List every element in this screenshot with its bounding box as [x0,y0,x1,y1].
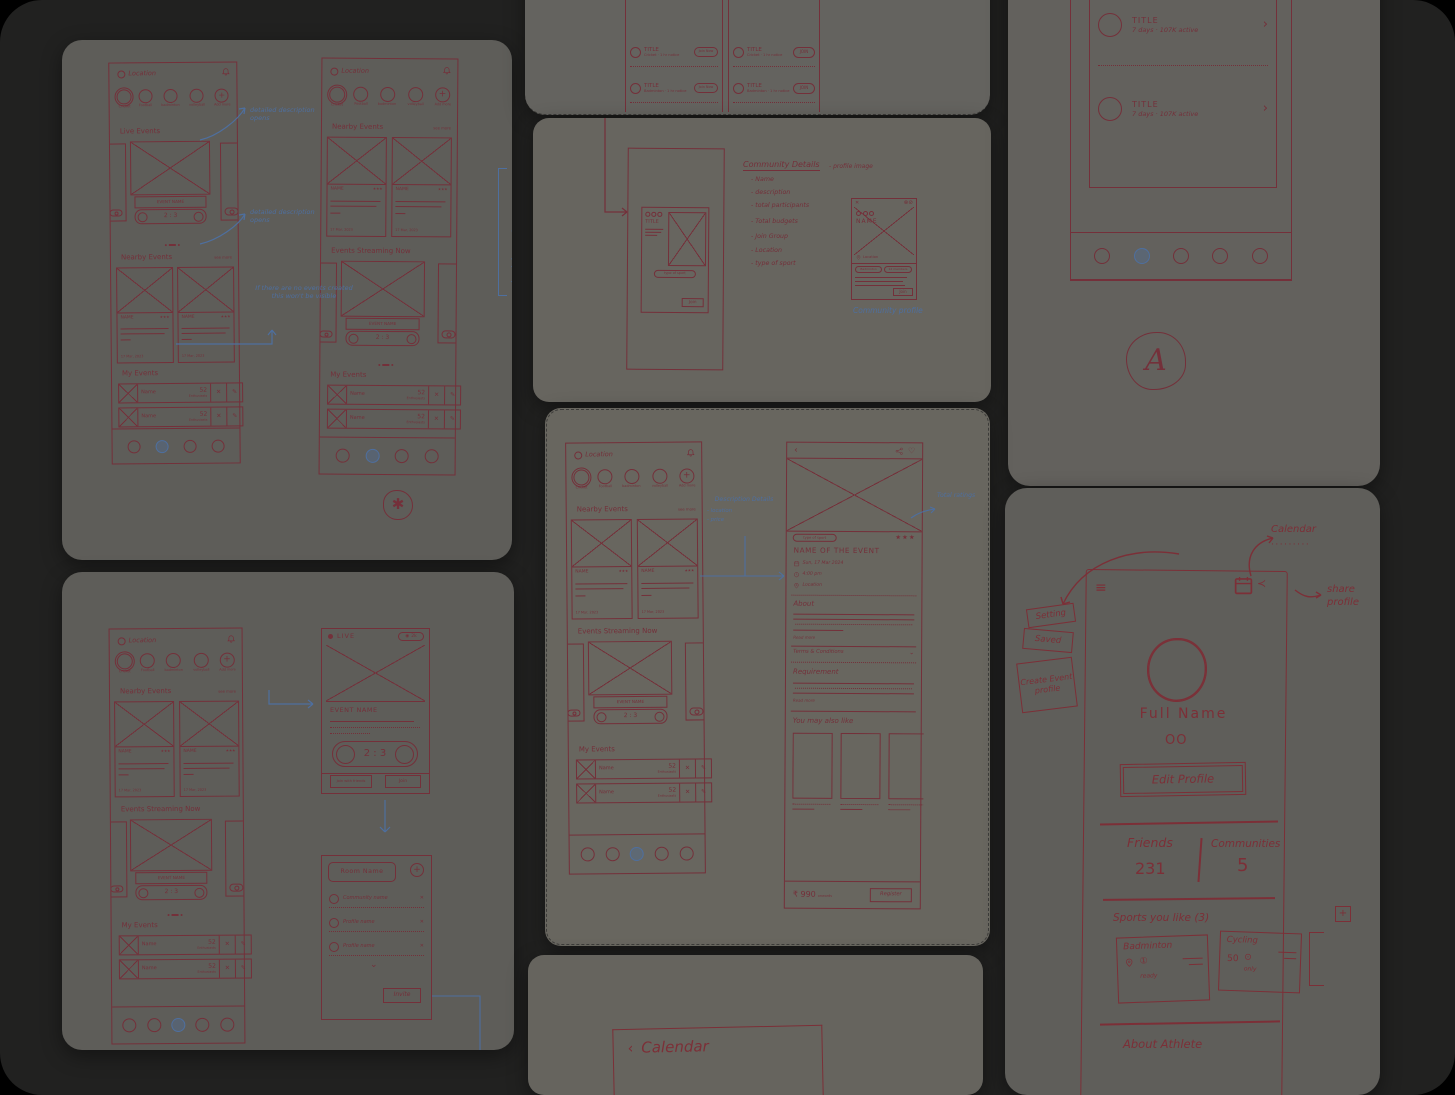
sketch-card-community-details[interactable]: TITLE type of sport Join Community Detai… [533,118,991,402]
nearby-event-card: NAME★★★ 17 Mar, 2023 [114,701,175,797]
suggestion-cards [792,733,923,811]
rating-stars: ★★★ [895,534,916,542]
bell-icon [221,68,230,77]
annotation-connector [174,324,284,352]
terms-link: Terms & Conditions [793,650,843,656]
nearby-event-card: NAME★★★ 17 Mar, 2023 [571,519,633,620]
remove-icon: ✕ [216,389,221,396]
location-icon [330,68,338,76]
carousel-dots [165,244,180,247]
my-event-row: Name52Enthusiasts ✕ ✎ [118,406,243,427]
annotation-connector [700,536,792,588]
remove-icon: ✕ [420,896,424,902]
sport-chips: Cricket Football badminton volleyball +A… [117,653,237,674]
back-icon: ‹ [628,1041,634,1057]
event-image [130,141,210,196]
live-dot [328,634,333,639]
annotation-detailed-2: detailed description opens [250,208,336,224]
friends-label: Friends [1127,836,1173,850]
location-label: Location [128,70,156,78]
event-title: NAME OF THE EVENT [794,547,880,556]
bell-icon [442,66,451,75]
menu-note-setting: Setting [1026,603,1076,628]
calendar-icon [794,561,800,567]
section-events-streaming: Events Streaming Now [331,247,411,256]
also-like-heading: You may also like [793,717,854,725]
phone-frame-community: TITLE type of sport Join [626,148,725,371]
annotation-placement: ordered placement [510,168,512,292]
annotation-arrow [1047,544,1187,612]
heart-icon: ♡ [908,447,915,456]
share-report-icons: ⊗⊘ [904,200,913,206]
community-profile-screen: ✕ ⊗⊘ NAME Location Badminton 12 members … [851,198,917,300]
my-event-row: Name52Enthusiasts ✕ ✎ [119,958,252,979]
phone-column: TITLECricket · 1 hr notice Join Now TITL… [625,0,723,112]
community-bullet-list: - Name - description - total participant… [751,176,809,268]
menu-note-saved: Saved [1022,628,1074,653]
join-button: JOIN [793,83,815,94]
menu-note-create-event: Create Event profile [1016,657,1078,713]
back-icon: ‹ [794,446,798,456]
about-athlete-heading: About Athlete [1123,1038,1202,1051]
bottom-nav [570,833,705,873]
phone-frame-titles: TITLE7 days · 107K active › TITLE7 days … [1070,0,1292,281]
sports-heading: Sports you like (3) [1113,912,1209,924]
annotation-arrow [1293,586,1325,602]
pin-icon [856,255,861,260]
annotation-connector [267,688,323,716]
my-event-row: Name52Enthusiasts ✕ ✎ [576,758,712,779]
price: ₹ 990 [793,890,816,899]
profile-image-note: - profile image [829,164,873,171]
sketch-card-title-list[interactable]: TITLE7 days · 107K active › TITLE7 days … [1008,0,1380,486]
annotation-arrow [198,204,252,248]
title-row: TITLE7 days · 107K active › [1098,0,1268,66]
avatar [1147,638,1207,702]
annotation-share-profile: share profile [1327,584,1371,609]
sport-chips: Cricket Football badminton volleyball +A… [573,468,696,490]
about-heading: About [793,600,814,608]
streaming-carousel: EVENT NAME 2 : 3 [320,261,456,362]
annotation-connector [909,504,939,522]
annotation-detailed-1: detailed description opens [250,106,336,122]
section-my-events: My Events [122,369,158,377]
room-name-input: Room Name [328,862,396,882]
sketch-card-join-lists[interactable]: TITLECricket · 1 hr notice Join Now TITL… [525,0,990,115]
invite-button: Invite [383,988,421,1003]
communities-label: Communities [1211,838,1280,850]
chevron-down-icon: ⌄ [370,960,378,970]
room-row: Profile name✕ [329,938,424,956]
score-pill: 2 : 3 [135,209,207,225]
sport-card-partial [1309,932,1324,986]
nearby-event-card: NAME★★★ 17 Mar, 2023 [179,701,240,797]
communities-value: 5 [1237,856,1248,877]
scribble [1278,952,1296,954]
location-icon [117,70,125,78]
plus-icon: + [218,91,225,100]
location-icon [574,451,582,459]
my-event-row: Name52Enthusiasts ✕ ✎ [576,782,712,803]
room-row: Profile name✕ [329,914,424,932]
annotation-total-ratings: Total ratings [937,492,983,500]
section-live-events: Live Events [120,127,160,135]
title-row: TITLE7 days · 107K active › [1098,69,1268,149]
phone-frame-home: Location Cricket Football badminton voll… [109,628,246,1045]
sketch-card-live-room[interactable]: Location Cricket Football badminton voll… [62,572,514,1050]
friends-value: 231 [1135,860,1166,878]
whiteboard-canvas[interactable]: Location Cricket Football badminton voll… [0,0,1455,1095]
signature-mark: ✱ [383,490,413,520]
phone-frame-home-streaming: Location Cricket Football badminton voll… [319,58,459,476]
calendar-title: Calendar [641,1038,709,1057]
share-icon [895,447,903,455]
join-with-friends-button: Join with friends [330,775,372,788]
my-event-row: Name52Enthusiasts ✕ ✎ [118,382,243,403]
add-member-button: + [410,863,424,877]
event-hero-image [787,458,922,533]
pin-icon [793,583,799,589]
room-screen: Room Name + Community name✕ Profile name… [321,855,432,1020]
community-card: TITLE type of sport Join [641,207,710,313]
live-label: LIVE [337,633,355,640]
annotation-community-profile: Community profile [853,306,923,315]
calendar-box: ‹ Calendar [612,1025,823,1095]
calendar-icon [1233,575,1254,596]
phone-frame-event-detail: ‹ ♡ type of sport ★★★ NAME OF THE EVENT … [784,442,923,910]
edit-icon: ✎ [232,389,237,396]
clock-icon [794,572,800,578]
live-screen: LIVE ◉2k EVENT NAME 2 : 3 Join with frie… [321,628,430,794]
section-nearby-events: Nearby Events [121,253,172,261]
bell-icon [686,448,695,457]
list-row: TITLECricket · 1 hr notice JOIN [733,38,815,67]
location-icon [118,637,126,645]
room-row: Community name✕ [329,890,424,908]
signature-mark: A [1126,332,1186,390]
pin-icon [1125,958,1134,967]
sketch-card-home-screens[interactable]: Location Cricket Football badminton voll… [62,40,512,560]
community-details-heading: Community Details [743,160,820,171]
nearby-event-card: NAME★★★ 17 Mar, 2023 [391,137,452,237]
handles: OO [1165,734,1187,749]
annotation-arrow [1243,534,1279,578]
bottom-nav [112,427,239,463]
full-name: Full Name [1121,706,1246,722]
list-row: TITLECricket · 1 hr notice Join Now [630,38,718,67]
list-row: TITLEBadminton · 1 hr notice JOIN [733,74,815,103]
scribble [1189,964,1203,966]
annotation-connector [430,988,500,1050]
join-button: Join Now [694,83,718,93]
score-pill: 2 : 3 [332,741,418,767]
bottom-nav [1071,232,1291,280]
phone-column: TITLECricket · 1 hr notice JOIN TITLEBad… [728,0,820,112]
sport-card-cycling: Cycling 50 ⊙ only [1218,931,1302,994]
sketch-card-calendar[interactable]: ‹ Calendar [528,955,983,1095]
sport-card-badminton: Badminton ① ready [1116,934,1210,1003]
close-icon: ✕ [855,201,859,207]
join-button: Join [682,298,704,307]
join-button: Join Now [694,47,718,57]
sketch-card-profile[interactable]: ≡ ≺ Calendar ········· share profile Set… [1005,488,1380,1095]
register-footer: ₹ 990onwards Register [785,881,920,909]
bell-icon [227,635,236,644]
scribble [1284,958,1296,960]
list-row: TITLEBadminton · 1 hr notice Join Now [630,74,718,103]
title-list-box: TITLE7 days · 107K active › TITLE7 days … [1089,0,1277,188]
phone-frame-home: Location Cricket Football badminton voll… [565,441,706,874]
requirement-heading: Requirement [793,668,839,676]
bottom-nav [320,437,455,475]
edit-profile-button: Edit Profile [1123,765,1243,794]
my-event-row: Name52Enthusiasts ✕ ✎ [327,385,461,406]
bottom-nav [112,1006,244,1044]
scribble [1183,958,1203,960]
my-event-row: Name52Enthusiasts ✕ ✎ [119,934,252,955]
register-button: Register [870,888,912,902]
sketch-card-event-detail[interactable]: Location Cricket Football badminton voll… [545,408,990,946]
see-more-link: see more [214,255,232,260]
join-button: Join [893,288,913,296]
join-button: JOIN [793,47,815,58]
join-button: Join [385,775,421,788]
sport-chips: Cricket Football badminton volleyball +A… [329,87,452,108]
share-icon: ≺ [1257,578,1266,591]
annotation-description-details: Description Details - location - price [707,496,781,523]
add-sport-button: + [1335,906,1351,922]
annotation-no-events: If there are no events created this won'… [254,284,354,300]
viewers-pill: ◉2k [398,632,424,641]
annotation-bracket [498,168,507,296]
chevron-down-icon: ⌄ [909,650,914,657]
my-event-row: Name52Enthusiasts ✕ ✎ [327,409,461,430]
annotation-arrow-down [378,798,392,840]
nearby-event-card: NAME★★★ 17 Mar, 2023 [116,267,174,363]
eye-icon: ◉ [405,634,409,639]
read-more-link: Read more [793,636,815,641]
annotation-arrow [198,100,252,144]
nearby-event-card: NAME★★★ 17 Mar, 2023 [637,518,699,619]
